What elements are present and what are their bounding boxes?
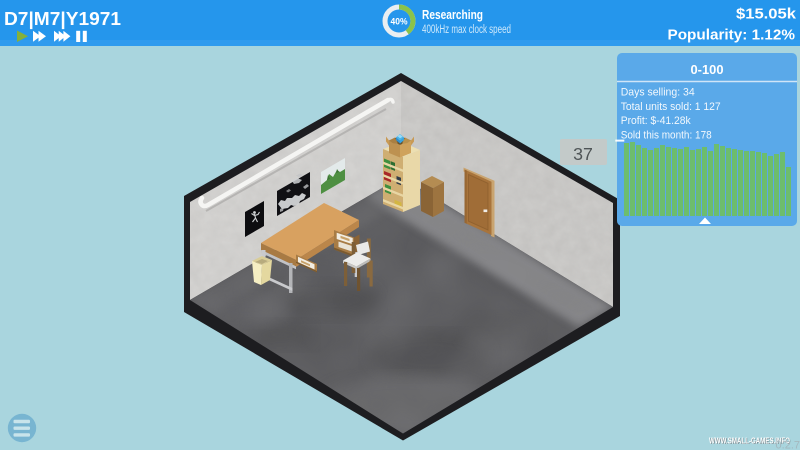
svg-text:Researching: Researching [422,7,483,22]
svg-text:Days selling: 34: Days selling: 34 [621,87,695,99]
svg-text:0-100: 0-100 [691,62,724,77]
svg-text:0.2.7: 0.2.7 [776,440,800,450]
svg-text:$15.05k: $15.05k [736,6,797,22]
svg-text:Total units sold: 1 127: Total units sold: 1 127 [621,101,721,113]
svg-text:D7|M7|Y1971: D7|M7|Y1971 [4,8,121,29]
svg-text:Sold this month: 178: Sold this month: 178 [621,129,712,141]
svg-text:Profit: $-41.28k: Profit: $-41.28k [621,115,691,127]
svg-text:400kHz max clock speed: 400kHz max clock speed [422,24,511,36]
svg-text:Popularity: 1.12%: Popularity: 1.12% [668,28,796,44]
svg-text:40%: 40% [391,16,408,26]
svg-text:37: 37 [573,144,593,164]
